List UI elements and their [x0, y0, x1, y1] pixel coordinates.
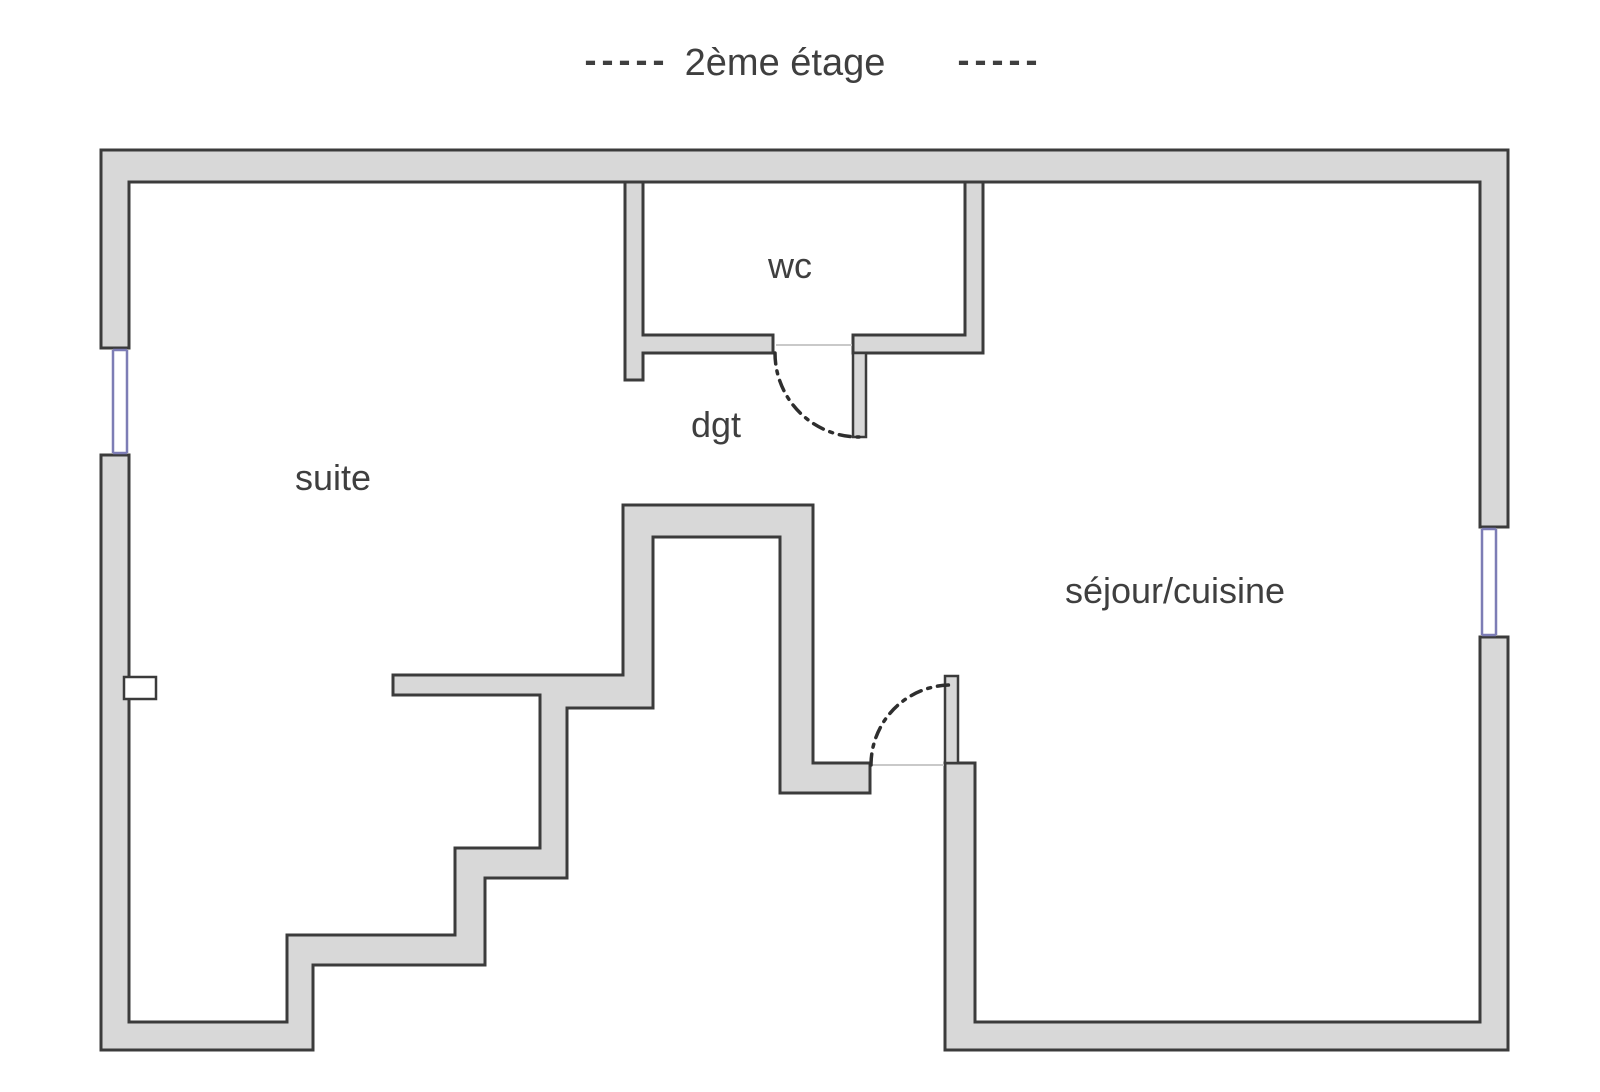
wc-partition-right	[853, 182, 983, 353]
title-dashes-right: -----	[958, 39, 1043, 80]
floor-plan-page: ----- 2ème étage -----	[0, 0, 1600, 1092]
sejour-door-leaf	[945, 676, 958, 763]
room-label-dgt: dgt	[691, 404, 741, 445]
title-dashes-left: -----	[585, 39, 670, 80]
wc-partition-left	[625, 182, 773, 380]
room-label-sejour-cuisine: séjour/cuisine	[1065, 570, 1285, 611]
wc-door-leaf	[853, 353, 866, 437]
room-label-wc: wc	[767, 245, 812, 286]
floor-plan-svg: ----- 2ème étage -----	[0, 0, 1600, 1092]
left-wall-notch	[124, 677, 156, 699]
sejour-door-arc	[871, 685, 951, 765]
room-label-suite: suite	[295, 457, 371, 498]
outer-wall-left-stair	[101, 455, 870, 1050]
window-left	[113, 350, 127, 453]
sejour-wall	[945, 637, 1508, 1050]
wc-door-arc	[775, 353, 859, 437]
floor-title: 2ème étage	[685, 42, 886, 84]
window-right	[1482, 529, 1496, 635]
